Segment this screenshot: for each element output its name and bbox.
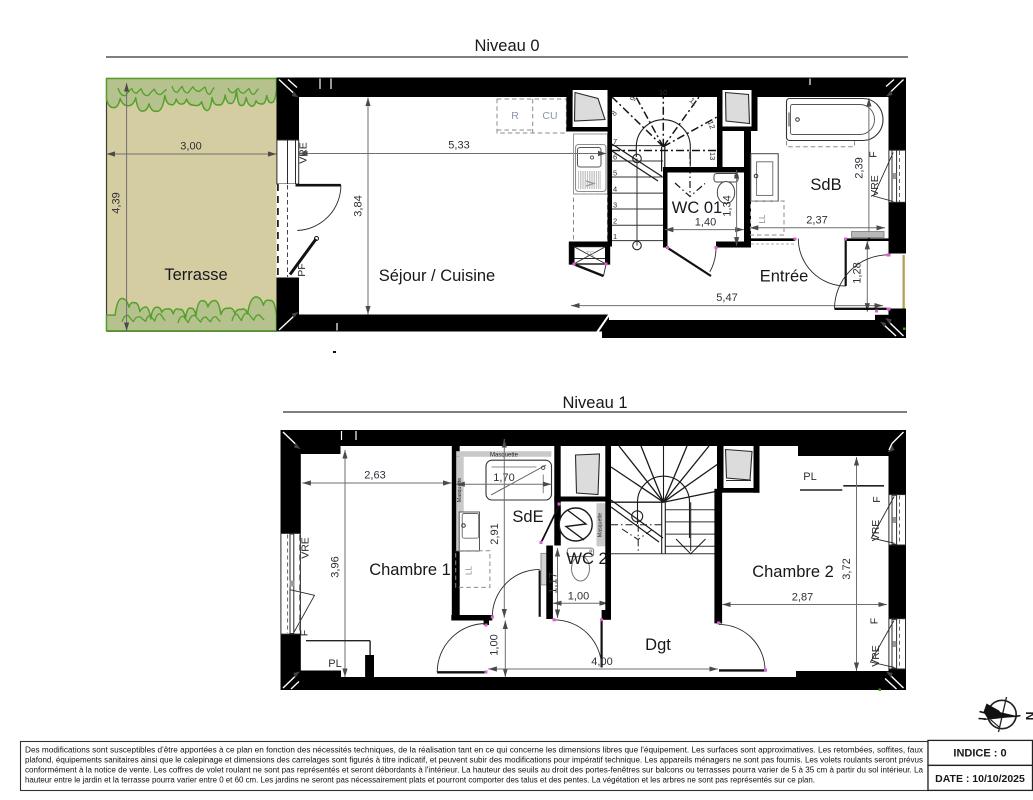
- svg-text:VRE: VRE: [869, 175, 881, 197]
- svg-text:hauteur entre le jardin et la: hauteur entre le jardin et la terrasse p…: [25, 776, 815, 785]
- svg-text:3,96: 3,96: [330, 556, 342, 577]
- svg-text:1: 1: [613, 232, 617, 241]
- svg-text:SdB: SdB: [810, 176, 841, 194]
- svg-text:F: F: [871, 496, 883, 502]
- svg-text:2,63: 2,63: [364, 470, 385, 482]
- svg-text:CU: CU: [542, 110, 557, 122]
- svg-text:3: 3: [613, 201, 617, 210]
- svg-text:F: F: [299, 630, 311, 636]
- svg-text:Dgt: Dgt: [645, 636, 671, 654]
- svg-text:1,00: 1,00: [489, 634, 501, 655]
- svg-text:1,28: 1,28: [852, 262, 864, 283]
- svg-text:PF: PF: [296, 263, 308, 276]
- svg-text:1,00: 1,00: [568, 591, 589, 603]
- svg-text:5: 5: [613, 169, 617, 178]
- svg-text:7: 7: [613, 137, 617, 146]
- svg-text:5,47: 5,47: [716, 292, 737, 304]
- svg-text:1,34: 1,34: [722, 195, 734, 216]
- svg-text:4,00: 4,00: [591, 656, 612, 668]
- svg-text:1,40: 1,40: [695, 217, 716, 229]
- svg-text:SdE: SdE: [512, 508, 543, 526]
- svg-text:Chambre 2: Chambre 2: [752, 563, 834, 581]
- svg-text:VRE: VRE: [870, 520, 882, 542]
- svg-text:6: 6: [613, 153, 617, 162]
- svg-text:Entrée: Entrée: [760, 268, 809, 286]
- svg-text:WC 2: WC 2: [566, 550, 607, 568]
- svg-text:2,37: 2,37: [806, 215, 827, 227]
- svg-text:Terrasse: Terrasse: [164, 266, 227, 284]
- svg-text:2,39: 2,39: [854, 157, 866, 178]
- svg-text:13: 13: [708, 152, 717, 160]
- svg-text:Masquette: Masquette: [457, 478, 463, 502]
- svg-text:10: 10: [659, 88, 667, 97]
- svg-text:1,17: 1,17: [548, 572, 560, 593]
- svg-text:Niveau 0: Niveau 0: [474, 37, 539, 55]
- svg-text:Chambre 1: Chambre 1: [369, 561, 451, 579]
- svg-text:INDICE : 0: INDICE : 0: [953, 748, 1006, 760]
- svg-text:WC 01: WC 01: [672, 199, 722, 217]
- svg-text:2: 2: [613, 217, 617, 226]
- svg-text:conformément à la notice de ve: conformément à la notice de vente. Les c…: [25, 766, 924, 775]
- svg-text:VRE: VRE: [300, 537, 312, 559]
- svg-text:LL: LL: [758, 214, 767, 223]
- svg-text:2,87: 2,87: [792, 592, 813, 604]
- svg-text:LL: LL: [465, 566, 474, 575]
- svg-text:F: F: [868, 151, 880, 157]
- svg-text:F: F: [869, 618, 881, 624]
- svg-text:Masquette: Masquette: [598, 513, 604, 537]
- svg-text:3,72: 3,72: [841, 558, 853, 579]
- svg-text:TE: TE: [586, 251, 595, 258]
- svg-text:PL: PL: [328, 658, 341, 670]
- svg-text:3,84: 3,84: [353, 195, 365, 216]
- svg-text:Des modifications sont suscept: Des modifications sont susceptibles d'êt…: [25, 746, 923, 755]
- svg-text:DATE : 10/10/2025: DATE : 10/10/2025: [935, 773, 1025, 785]
- svg-text:4: 4: [613, 185, 617, 194]
- svg-text:Séjour / Cuisine: Séjour / Cuisine: [379, 267, 495, 285]
- svg-text:R: R: [511, 110, 519, 122]
- svg-text:N: N: [1023, 712, 1033, 721]
- svg-text:5,33: 5,33: [448, 140, 469, 152]
- svg-text:PL: PL: [803, 471, 816, 483]
- svg-text:2,91: 2,91: [489, 523, 501, 544]
- svg-text:VRE: VRE: [870, 645, 882, 667]
- svg-text:Niveau 1: Niveau 1: [562, 394, 627, 412]
- svg-text:plafond, équipements sanitaire: plafond, équipements sanitaires ainsi qu…: [25, 756, 923, 765]
- svg-text:4,39: 4,39: [111, 192, 123, 213]
- svg-text:3,00: 3,00: [180, 141, 201, 153]
